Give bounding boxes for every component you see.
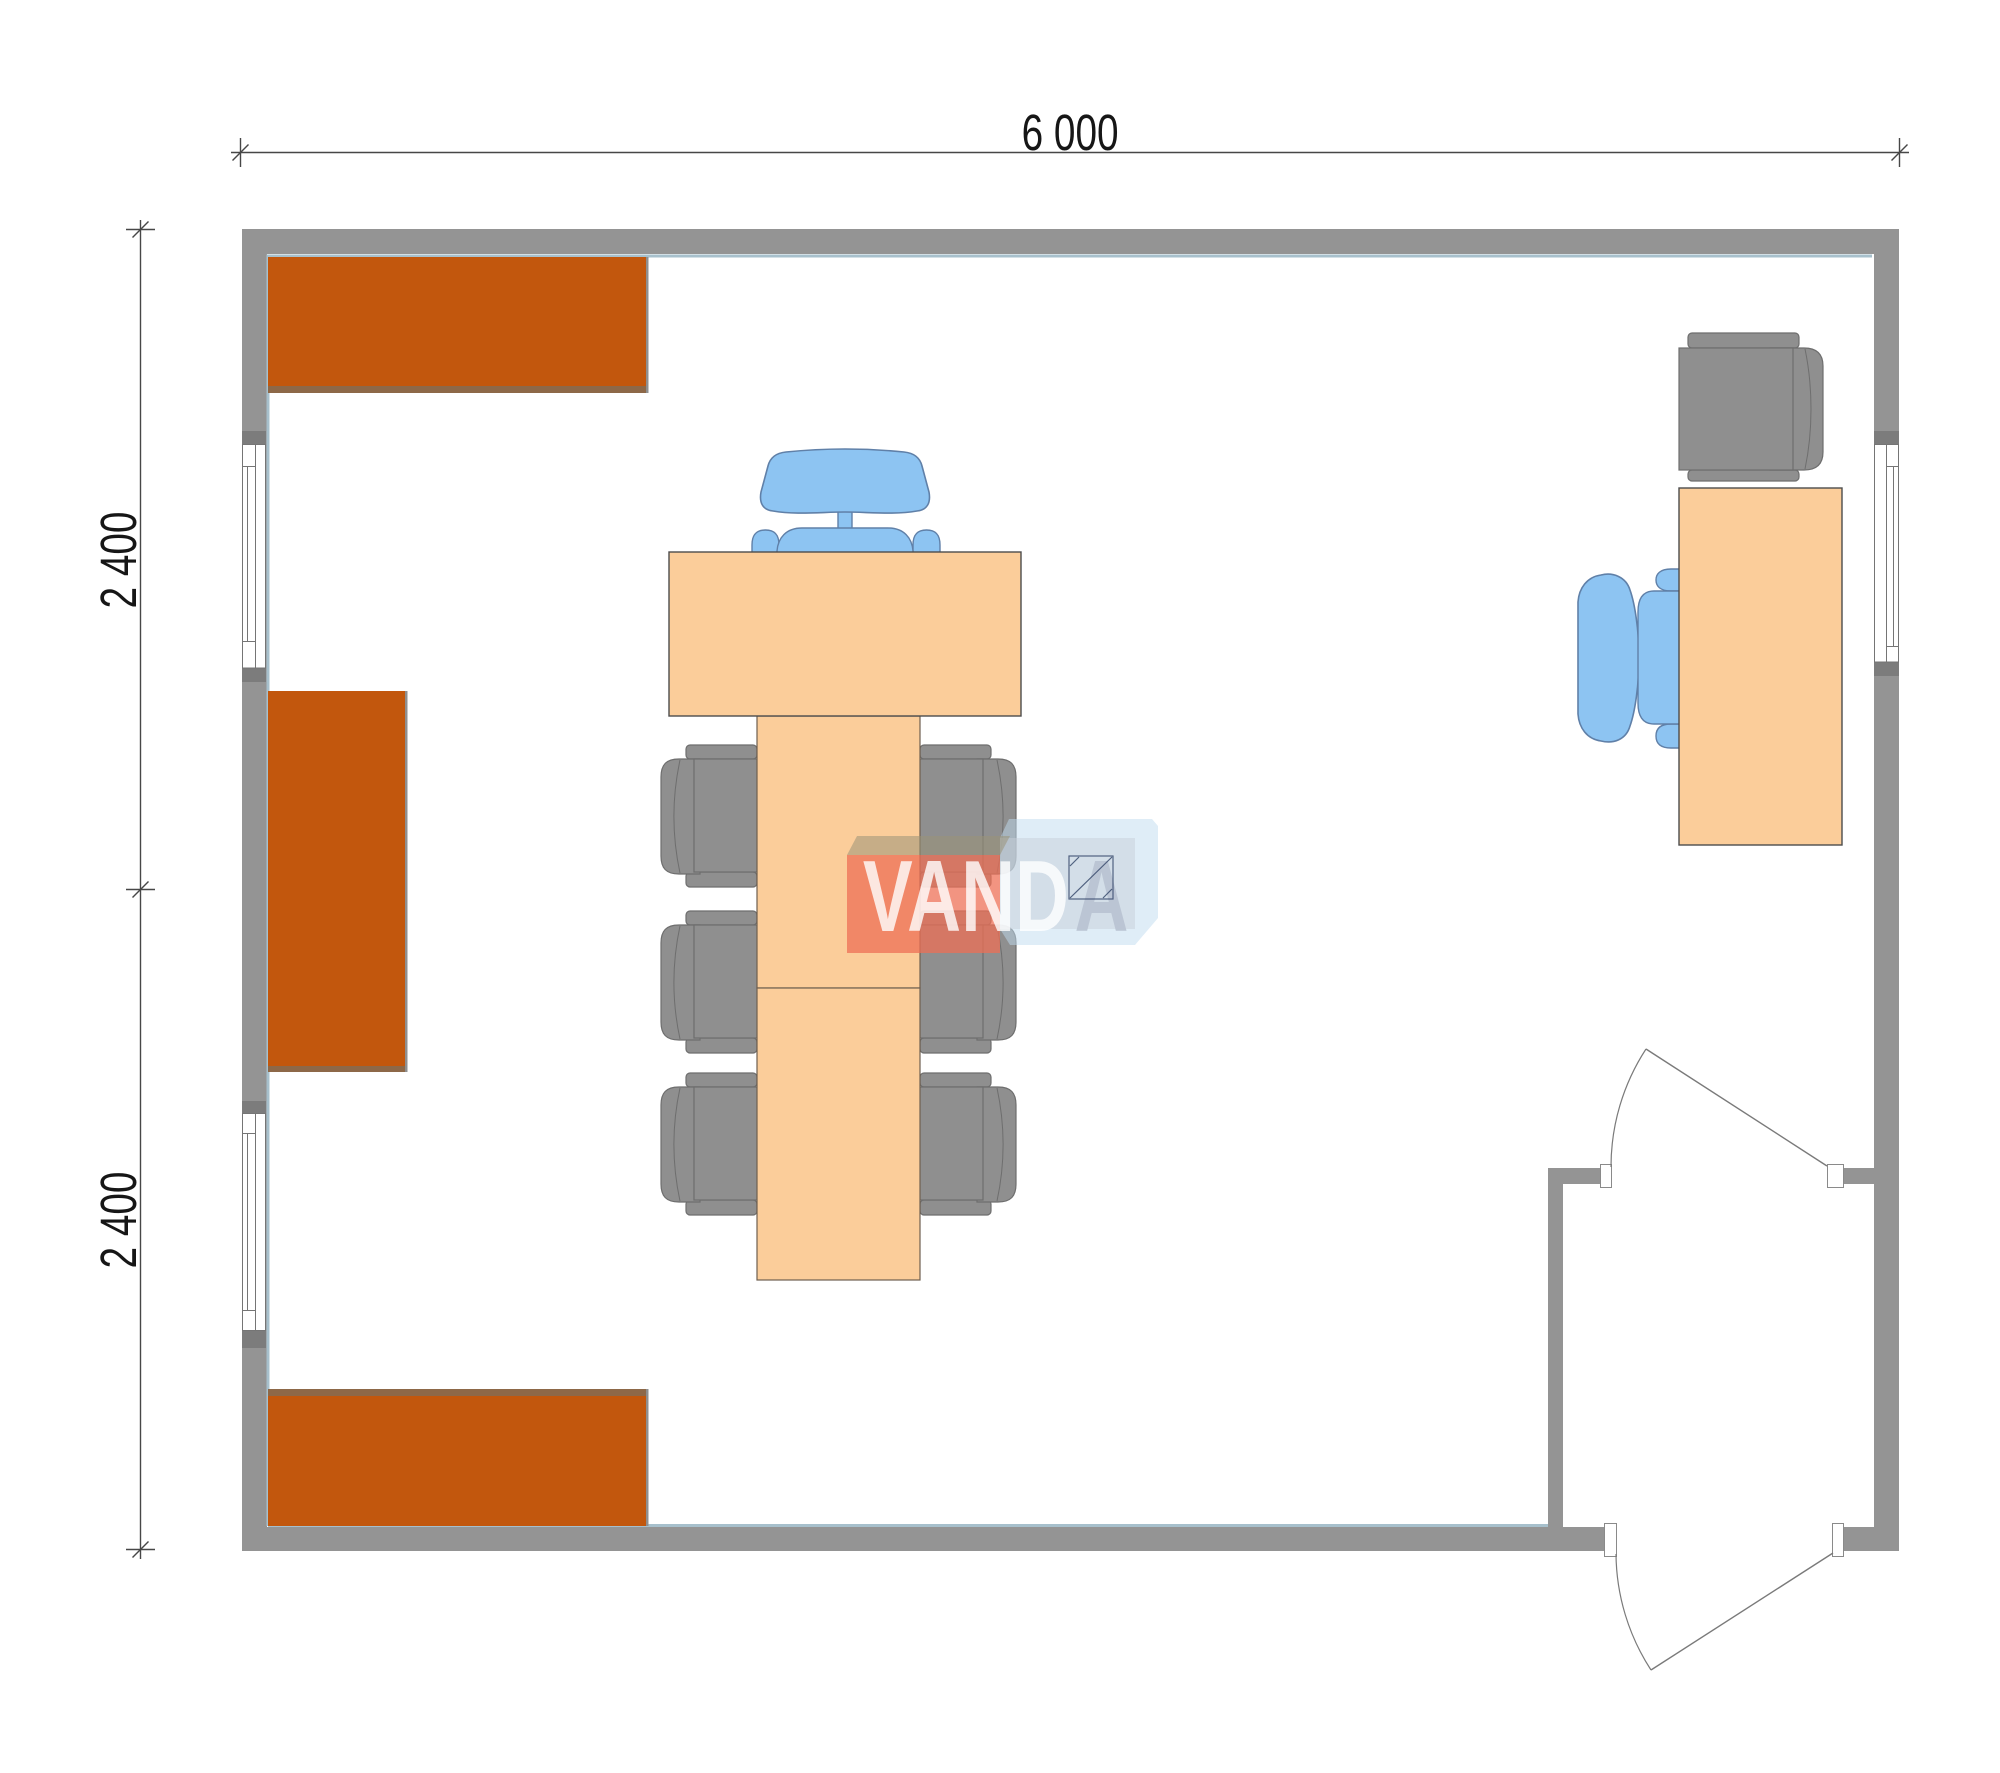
svg-text:2 400: 2 400 [90,512,147,609]
svg-text:VAND: VAND [863,840,1069,953]
svg-text:2 400: 2 400 [90,1172,147,1269]
svg-text:6 000: 6 000 [1022,104,1119,161]
svg-text:A: A [1074,840,1128,953]
